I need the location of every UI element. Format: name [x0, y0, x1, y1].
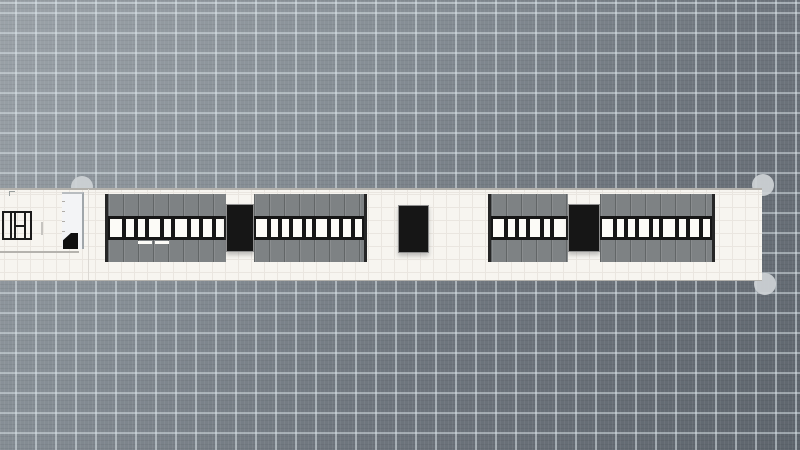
annotation-tick [9, 191, 15, 196]
shelf-top-band [254, 194, 364, 216]
shelf-window-band [491, 216, 568, 240]
shelf-slot [126, 219, 134, 237]
shelf-slot [602, 219, 613, 237]
shelf-window-band [108, 216, 226, 240]
shelf-end-panel [364, 194, 367, 262]
shelf-slot [519, 219, 526, 237]
shelf-top-band [108, 194, 226, 216]
shelf-top-band [491, 194, 568, 216]
shelf-bay[interactable] [254, 194, 364, 262]
price-tab [155, 241, 169, 244]
shelf-slot [256, 219, 267, 237]
symbol-divider-vertical [10, 213, 12, 238]
shelf-slot [628, 219, 635, 237]
shelf-slot [138, 219, 146, 237]
shelf-slot [554, 219, 566, 237]
shelf-slot [639, 219, 648, 237]
shelf-slot [149, 219, 159, 237]
shelf-bay[interactable] [108, 194, 226, 262]
freestanding-end-unit[interactable] [398, 205, 429, 253]
cabinet-shelf-tick [62, 231, 65, 232]
shelf-slot [203, 219, 212, 237]
shelf-slot [306, 219, 312, 237]
zone-divider-line [88, 189, 89, 280]
shelf-slot [530, 219, 539, 237]
shelf-window-band [600, 216, 712, 240]
wall-baseline [0, 251, 79, 253]
cabinet-shelf-tick [62, 221, 65, 222]
shelf-slot [690, 219, 699, 237]
price-tab [138, 241, 152, 244]
shelf-end-panel [712, 194, 715, 262]
shelf-slot [271, 219, 278, 237]
shelf-bottom-band [491, 240, 568, 262]
shelf-slot [493, 219, 504, 237]
shelf-slot [508, 219, 515, 237]
shelf-slot [703, 219, 710, 237]
shelf-slot [544, 219, 551, 237]
cabinet-shelf-tick [62, 201, 65, 202]
shelf-slot [331, 219, 338, 237]
shelf-slot [653, 219, 660, 237]
shelf-top-band [600, 194, 712, 216]
shelf-slot [663, 219, 675, 237]
shelf-bay[interactable] [600, 194, 712, 262]
shelf-bay[interactable] [491, 194, 568, 262]
cabinet-shelf-tick [62, 211, 65, 212]
shelf-slot [343, 219, 351, 237]
shelf-slot [316, 219, 327, 237]
shelf-slot [617, 219, 624, 237]
shelf-slot [175, 219, 188, 237]
design-canvas[interactable] [0, 0, 800, 450]
shelf-bottom-band [254, 240, 364, 262]
shelf-slot [110, 219, 122, 237]
shelf-slot [216, 219, 224, 237]
gondola-end-cap[interactable] [226, 204, 254, 252]
shelf-slot [191, 219, 199, 237]
floor-strip[interactable] [0, 188, 762, 281]
shelf-slot [679, 219, 686, 237]
shelf-run-left[interactable] [105, 194, 367, 262]
gondola-end-cap[interactable] [568, 204, 600, 252]
counter-plan-symbol[interactable] [2, 211, 32, 240]
door-tick [41, 222, 43, 235]
shelf-slot [293, 219, 302, 237]
shelf-slot [164, 219, 171, 237]
shelf-run-right[interactable] [488, 194, 715, 262]
shelf-bottom-band [600, 240, 712, 262]
shelf-slot [282, 219, 289, 237]
shelf-slot [355, 219, 362, 237]
shelf-window-band [254, 216, 364, 240]
symbol-divider-vertical [24, 213, 26, 238]
